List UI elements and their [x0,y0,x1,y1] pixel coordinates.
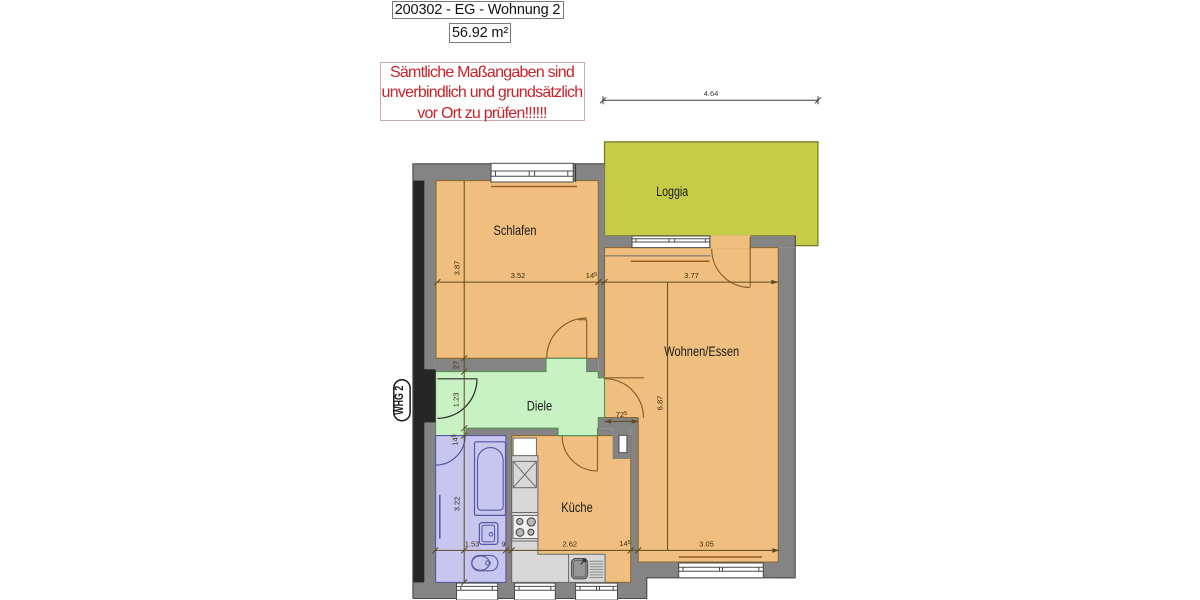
svg-text:3.77: 3.77 [684,271,699,280]
svg-text:Diele: Diele [527,399,553,414]
svg-text:1.23: 1.23 [452,393,461,408]
svg-text:Schlafen: Schlafen [494,223,537,238]
svg-text:Wohnen/Essen: Wohnen/Essen [664,344,739,359]
svg-text:3.87: 3.87 [453,261,462,276]
svg-text:Loggia: Loggia [656,184,688,199]
svg-text:27: 27 [452,361,461,369]
svg-text:WHG 2: WHG 2 [392,385,406,414]
svg-text:3.22: 3.22 [453,497,462,512]
svg-text:Küche: Küche [561,500,593,515]
svg-text:3.05: 3.05 [699,539,714,548]
svg-text:4.64: 4.64 [704,89,719,98]
svg-text:1.53: 1.53 [465,539,480,548]
svg-text:2.62: 2.62 [562,539,577,548]
svg-text:6.87: 6.87 [655,396,664,411]
svg-text:3.52: 3.52 [511,271,526,280]
svg-text:9: 9 [501,539,505,548]
